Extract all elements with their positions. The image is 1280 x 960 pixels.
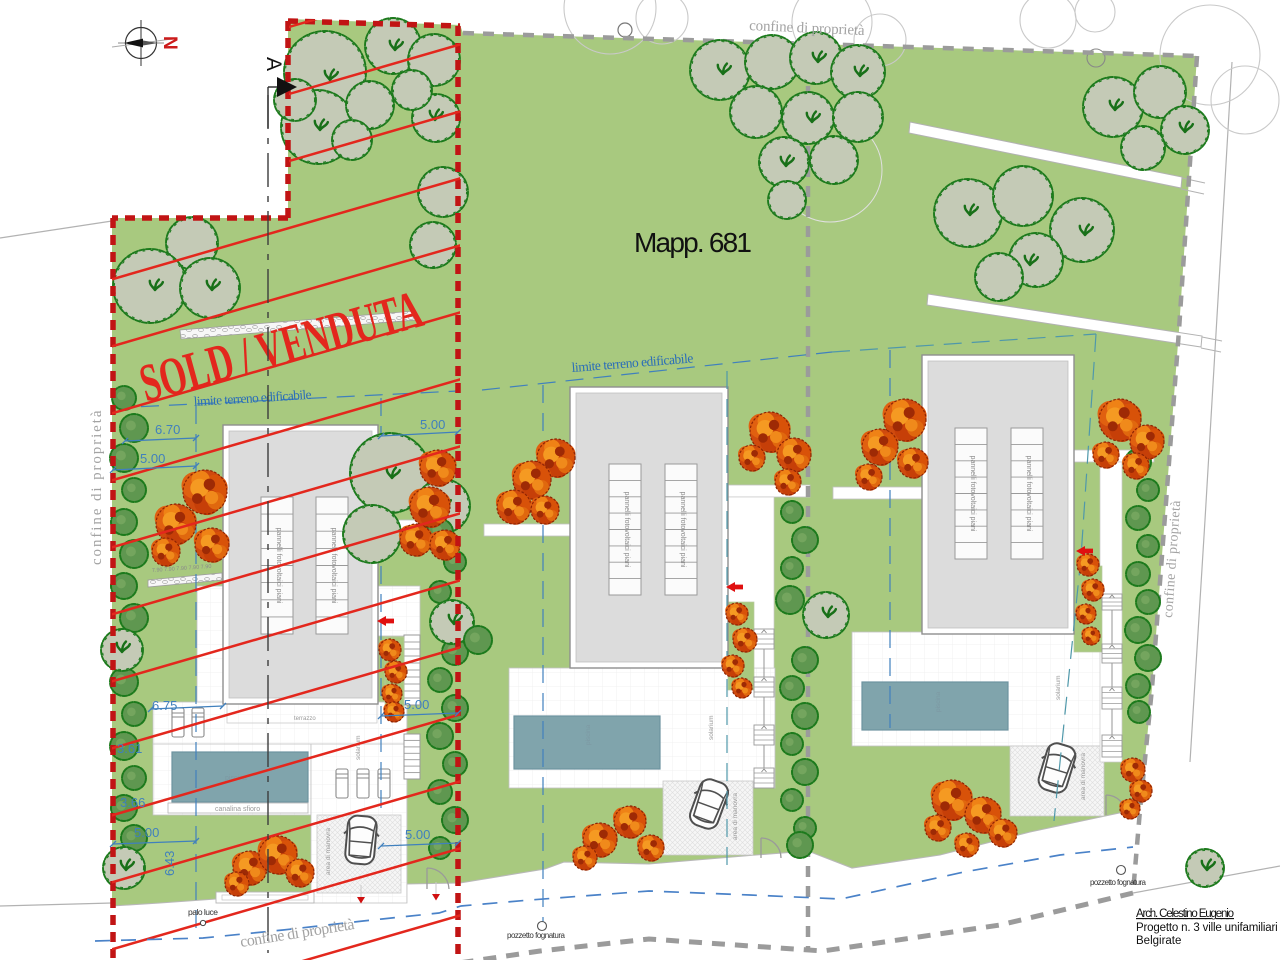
svg-text:5.00: 5.00: [134, 825, 159, 840]
svg-text:pannelli fotovoltaici piani: pannelli fotovoltaici piani: [679, 492, 686, 568]
svg-text:piscina: piscina: [585, 724, 592, 745]
svg-text:Mapp. 681: Mapp. 681: [634, 227, 752, 258]
svg-text:3.61: 3.61: [117, 741, 142, 756]
svg-text:solarium: solarium: [355, 735, 362, 760]
svg-text:A: A: [262, 57, 285, 71]
svg-text:pannelli fotovoltaici piani: pannelli fotovoltaici piani: [969, 456, 976, 532]
svg-text:palo luce: palo luce: [188, 907, 218, 917]
svg-text:3.66: 3.66: [120, 795, 145, 810]
svg-text:6.43: 6.43: [162, 851, 177, 876]
svg-text:pannelli fotovoltaici piani: pannelli fotovoltaici piani: [330, 528, 337, 604]
svg-text:solarium: solarium: [1055, 675, 1062, 700]
svg-text:confine di proprietà: confine di proprietà: [89, 410, 105, 565]
svg-text:5.00: 5.00: [140, 451, 165, 466]
svg-text:area di manovra: area di manovra: [325, 828, 332, 875]
svg-text:6.75: 6.75: [152, 698, 177, 713]
svg-text:solarium: solarium: [708, 715, 715, 740]
svg-text:terrazzo: terrazzo: [294, 716, 316, 722]
svg-text:pannelli fotovoltaici piani: pannelli fotovoltaici piani: [1025, 456, 1032, 532]
svg-text:Arch. Celestino Eugenio: Arch. Celestino Eugenio: [1136, 908, 1234, 920]
svg-text:pozzetto fognatura: pozzetto fognatura: [507, 931, 566, 940]
svg-text:N: N: [159, 36, 180, 50]
svg-text:piscina: piscina: [935, 691, 942, 712]
svg-text:5.00: 5.00: [404, 697, 429, 712]
svg-text:Progetto n. 3 ville unifamilia: Progetto n. 3 ville unifamiliari con pis: [1136, 922, 1280, 934]
svg-text:canalina sfioro: canalina sfioro: [215, 806, 260, 813]
svg-text:area di manovra: area di manovra: [732, 793, 739, 840]
svg-text:Belgirate: Belgirate: [1136, 935, 1181, 947]
svg-text:pannelli fotovoltaici piani: pannelli fotovoltaici piani: [623, 492, 630, 568]
svg-text:5.00: 5.00: [420, 417, 445, 432]
svg-text:area di manovra: area di manovra: [1080, 753, 1087, 800]
svg-text:6.70: 6.70: [155, 422, 180, 437]
svg-text:pozzetto fognatura: pozzetto fognatura: [1090, 878, 1147, 887]
svg-text:5.00: 5.00: [405, 827, 430, 842]
